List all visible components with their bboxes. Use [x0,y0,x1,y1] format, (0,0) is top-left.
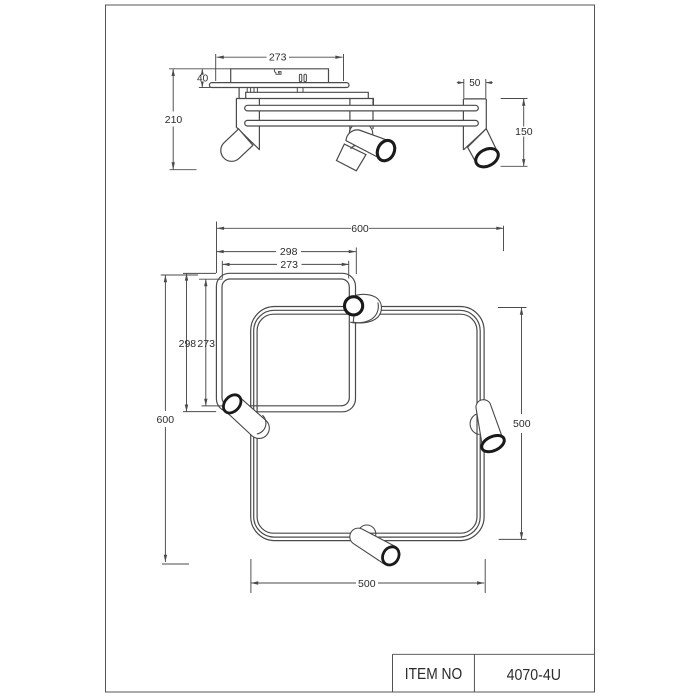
svg-text:273: 273 [197,338,215,350]
svg-text:273: 273 [269,52,287,64]
svg-text:4070-4U: 4070-4U [507,667,561,684]
svg-text:500: 500 [513,418,531,430]
svg-text:600: 600 [157,414,175,426]
svg-text:ITEM NO: ITEM NO [405,666,463,683]
svg-text:600: 600 [351,223,369,235]
svg-text:50: 50 [469,78,481,89]
svg-text:500: 500 [358,578,376,590]
svg-text:150: 150 [515,126,533,138]
svg-text:298: 298 [280,246,298,258]
svg-text:210: 210 [165,114,183,126]
svg-text:298: 298 [179,338,197,350]
svg-text:273: 273 [280,259,298,271]
svg-text:40: 40 [197,73,209,84]
